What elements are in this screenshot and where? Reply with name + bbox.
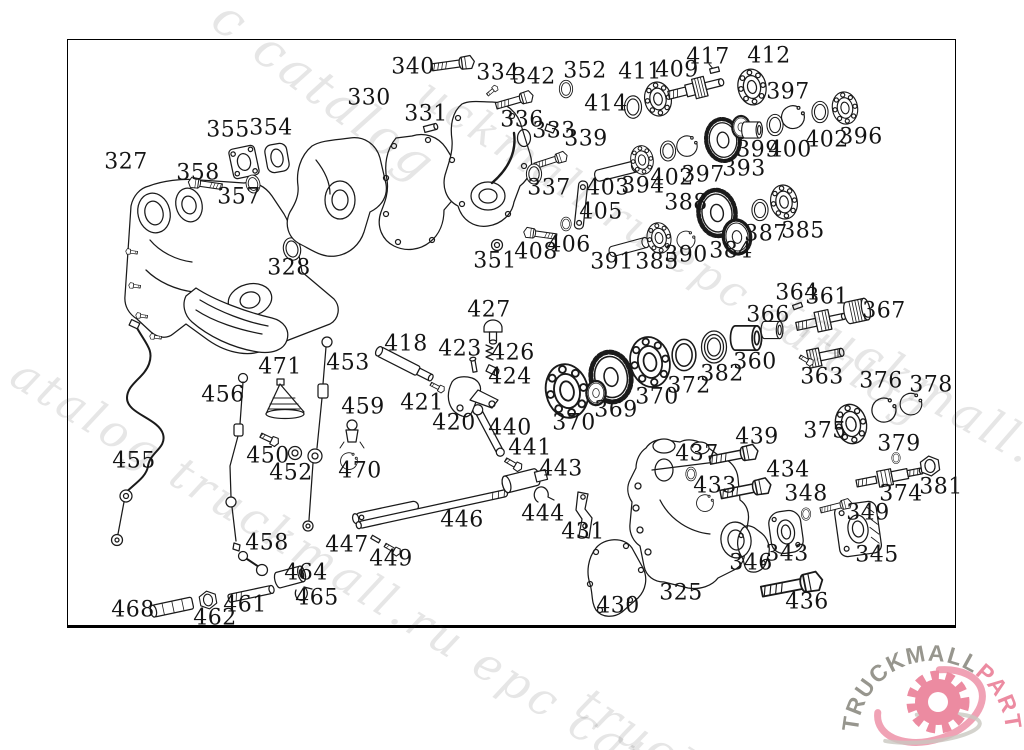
shift-linkage-drawing <box>112 320 365 576</box>
main-gear-train-drawing <box>541 298 922 464</box>
bottom-row-drawing <box>149 565 312 617</box>
input-shaft-row-drawing <box>624 64 860 163</box>
logo-gear-icon <box>911 675 965 729</box>
cover-330-drawing <box>287 123 460 256</box>
countershaft-row-drawing <box>593 136 800 257</box>
catalog-page: c cataloguckmall.ru epc catalogtruckmall… <box>0 0 1024 750</box>
case-half-drawing <box>444 102 531 227</box>
gasket-430-drawing <box>588 540 646 617</box>
linkage-rods-drawing <box>352 320 554 557</box>
truckmall-logo: TRUCKMALLPARTS <box>820 630 1024 750</box>
